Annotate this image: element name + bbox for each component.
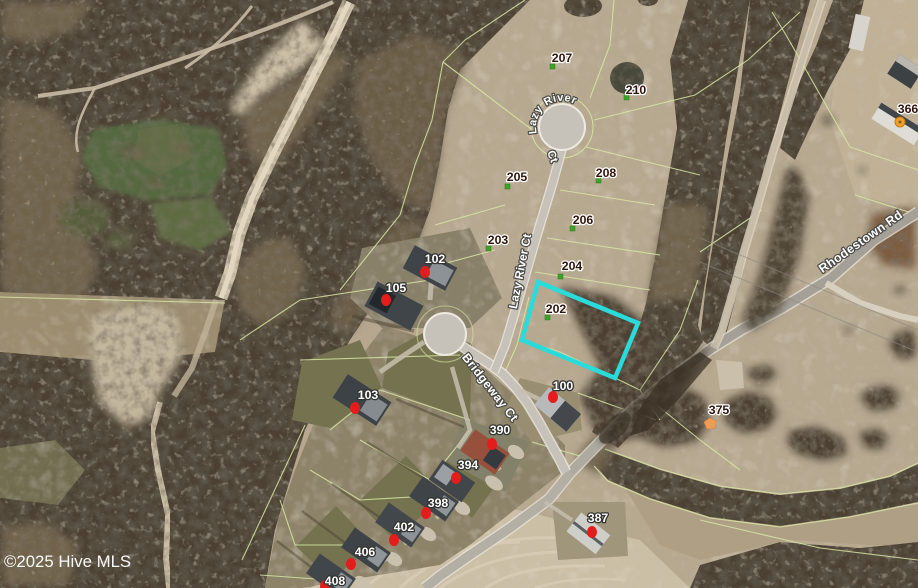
svg-text:408: 408 xyxy=(325,574,346,588)
svg-text:205: 205 xyxy=(507,170,528,184)
svg-text:©2025 Hive MLS: ©2025 Hive MLS xyxy=(4,552,131,571)
svg-text:105: 105 xyxy=(386,281,407,295)
svg-text:406: 406 xyxy=(355,545,376,559)
svg-text:207: 207 xyxy=(552,51,573,65)
svg-text:203: 203 xyxy=(488,233,509,247)
svg-text:103: 103 xyxy=(358,388,379,402)
svg-text:366: 366 xyxy=(898,102,918,116)
svg-text:387: 387 xyxy=(588,511,609,525)
svg-text:390: 390 xyxy=(490,423,511,437)
svg-text:102: 102 xyxy=(425,252,446,266)
svg-text:202: 202 xyxy=(546,302,567,316)
svg-text:208: 208 xyxy=(596,166,617,180)
svg-text:394: 394 xyxy=(458,458,479,472)
svg-text:204: 204 xyxy=(562,259,583,273)
svg-text:375: 375 xyxy=(709,403,730,417)
svg-text:206: 206 xyxy=(573,213,594,227)
svg-text:402: 402 xyxy=(394,520,415,534)
svg-text:398: 398 xyxy=(428,496,449,510)
svg-text:210: 210 xyxy=(626,83,647,97)
svg-text:100: 100 xyxy=(553,379,574,393)
